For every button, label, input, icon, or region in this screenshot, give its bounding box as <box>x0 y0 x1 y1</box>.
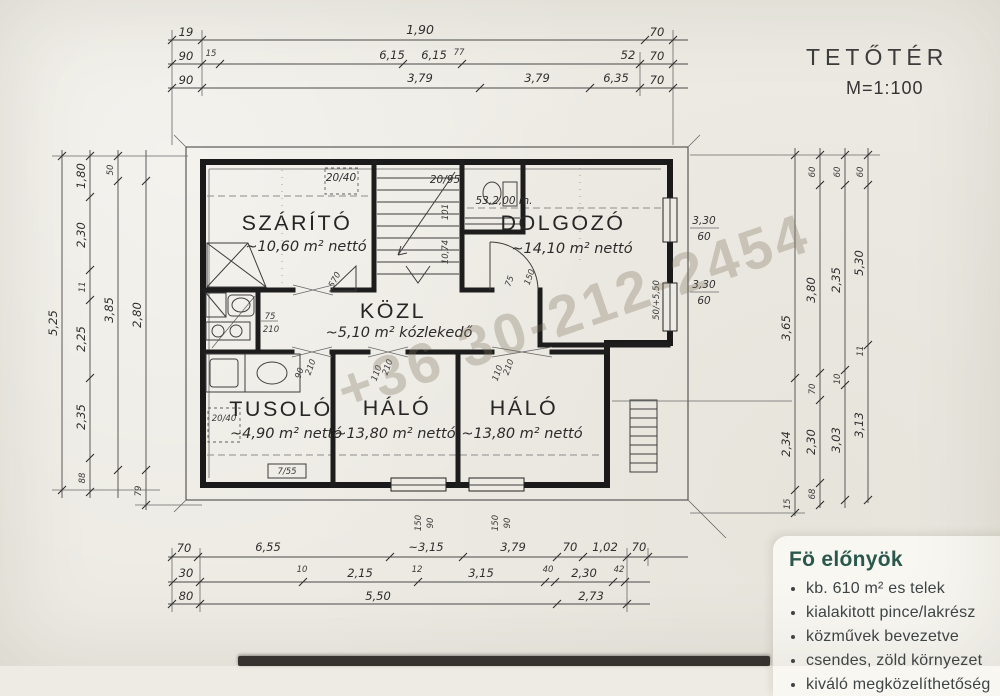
dim-label: 90 <box>179 49 194 63</box>
dim-label: 77 <box>454 48 465 58</box>
dim-label: 70 <box>632 540 647 554</box>
window-size-label: 90 <box>503 518 513 529</box>
dim-label: 70 <box>808 384 818 395</box>
dim-label: 2,35 <box>829 267 843 293</box>
room-area-halo-1: ~13,80 m² nettó <box>334 426 455 442</box>
benefit-item: kialakitott pince/lakrész <box>806 604 1000 622</box>
shower-room-fixtures <box>206 354 300 392</box>
dim-label: 6,15 <box>379 48 405 62</box>
dim-label: 3,13 <box>852 412 866 438</box>
benefits-panel: Fö előnyök kb. 610 m² es telek kialakito… <box>773 536 1000 696</box>
room-name-dolgozo: DOLGOZÓ <box>500 210 625 235</box>
dim-label: 3,03 <box>829 427 843 453</box>
dim-label: 3,79 <box>500 540 526 554</box>
dim-label: 2,30 <box>74 222 88 248</box>
skylight-label: 20/40 <box>326 172 357 184</box>
dim-label: 2,34 <box>779 431 793 457</box>
dim-label: 70 <box>650 73 665 87</box>
room-area-dolgozo: ~14,10 m² nettó <box>511 241 632 257</box>
dim-label: 50 <box>106 165 116 176</box>
wc-window-label: 20/95 <box>430 174 461 186</box>
door-size-label: 75 <box>265 312 276 322</box>
bathroom-fixtures <box>206 293 254 340</box>
stair-note: 101 <box>441 204 451 220</box>
photo-dark-edge <box>238 656 770 666</box>
exterior-stair <box>630 400 657 472</box>
benefit-item: kb. 610 m² es telek <box>806 580 1000 598</box>
room-area-tusolo: ~4,90 m² nettó <box>230 426 342 442</box>
scanned-floorplan-page: 19 1,90 70 90 15 6,15 6,15 77 52 70 90 3… <box>0 0 1000 666</box>
dim-label: 70 <box>177 541 192 555</box>
door-size-label: 210 <box>263 325 279 335</box>
dim-label: 90 <box>179 73 194 87</box>
dim-label: 19 <box>179 25 194 39</box>
dim-label: 3,79 <box>524 71 550 85</box>
dim-label: 2,80 <box>130 302 144 328</box>
dim-label: 11 <box>78 282 88 293</box>
dim-label: 3,79 <box>407 71 433 85</box>
room-name-kozl: KÖZL <box>360 299 426 323</box>
dim-label: 5,30 <box>852 250 866 276</box>
dim-label: 6,55 <box>255 540 281 554</box>
room-name-halo-2: HÁLÓ <box>490 395 559 420</box>
dim-label: 1,80 <box>74 163 88 189</box>
dim-label: 2,30 <box>571 566 597 580</box>
bottom-dimensions: 70 6,55 ~3,15 3,79 70 1,02 70 30 10 2,15… <box>168 540 688 612</box>
level-note: 53,2,00 m. <box>476 195 533 207</box>
dim-label: 2,15 <box>347 566 373 580</box>
dim-label: 79 <box>134 486 144 497</box>
dim-label: 88 <box>78 472 88 483</box>
right-dimensions: 3,65 2,34 15 60 3,80 70 2,30 68 60 2,35 … <box>612 148 880 517</box>
left-dimensions: 5,25 1,80 2,30 11 2,25 2,35 88 50 3,85 2… <box>46 150 202 510</box>
hatch-label: 7/55 <box>277 467 296 477</box>
dim-label: 11 <box>856 346 866 357</box>
dim-label: 2,25 <box>74 326 88 352</box>
room-area-szarito: ~10,60 m² nettó <box>245 239 366 255</box>
benefits-heading: Fö előnyök <box>789 548 1000 572</box>
dim-label: 70 <box>650 25 665 39</box>
room-area-halo-2: ~13,80 m² nettó <box>461 426 582 442</box>
dim-label: 2,73 <box>578 589 604 603</box>
window-size-label: 90 <box>426 518 436 529</box>
dim-label: 3,80 <box>804 277 818 303</box>
window-size-label: 3,30 <box>692 215 716 227</box>
dim-label: 5,25 <box>46 310 60 336</box>
room-name-szarito: SZÁRÍTÓ <box>242 210 353 235</box>
dim-label: 70 <box>563 540 578 554</box>
benefit-item: kiváló megközelíthetőség <box>806 676 1000 694</box>
dim-label: 42 <box>614 565 625 575</box>
dim-label: 60 <box>856 167 866 178</box>
dim-label: 15 <box>783 499 793 510</box>
room-name-tusolo: TUSOLÓ <box>229 396 332 421</box>
window-size-label: 150 <box>491 515 501 531</box>
dim-label: 15 <box>206 49 217 59</box>
dim-label: 6,35 <box>603 71 629 85</box>
dim-label: 1,02 <box>592 540 618 554</box>
dim-label: 2,35 <box>74 404 88 430</box>
door-size-label: 210 <box>304 358 319 377</box>
dim-label: 1,90 <box>406 22 434 37</box>
page-title: TETŐTÉR <box>806 44 976 71</box>
dim-label: 30 <box>179 566 194 580</box>
stair-note: 10,74 <box>441 240 451 264</box>
dim-label: 52 <box>621 48 636 62</box>
benefits-list: kb. 610 m² es telek kialakitott pince/la… <box>789 580 1000 694</box>
benefit-item: csendes, zöld környezet <box>806 652 1000 670</box>
dim-label: 80 <box>179 589 194 603</box>
dim-label: 60 <box>808 167 818 178</box>
dim-label: 3,85 <box>102 297 116 323</box>
dim-label: 40 <box>543 565 554 575</box>
dim-label: ~3,15 <box>408 540 443 554</box>
dim-label: 68 <box>808 488 818 499</box>
dim-label: 2,30 <box>804 429 818 455</box>
door-size-label: 75 <box>504 275 517 289</box>
drawing-scale: M=1:100 <box>846 78 976 99</box>
dim-label: 5,50 <box>365 589 391 603</box>
staircase <box>377 172 459 283</box>
dim-label: 10 <box>297 565 308 575</box>
benefit-item: közművek bevezetve <box>806 628 1000 646</box>
dim-label: 12 <box>412 565 423 575</box>
dim-label: 10 <box>833 374 843 385</box>
dim-label: 6,15 <box>421 48 447 62</box>
top-dimensions: 19 1,90 70 90 15 6,15 6,15 77 52 70 90 3… <box>168 22 688 145</box>
dim-label: 70 <box>650 49 665 63</box>
dim-label: 60 <box>833 167 843 178</box>
dim-label: 3,65 <box>779 315 793 341</box>
window-size-label: 150 <box>414 515 424 531</box>
door-size-label: 150 <box>523 268 538 287</box>
dim-label: 3,15 <box>468 566 494 580</box>
